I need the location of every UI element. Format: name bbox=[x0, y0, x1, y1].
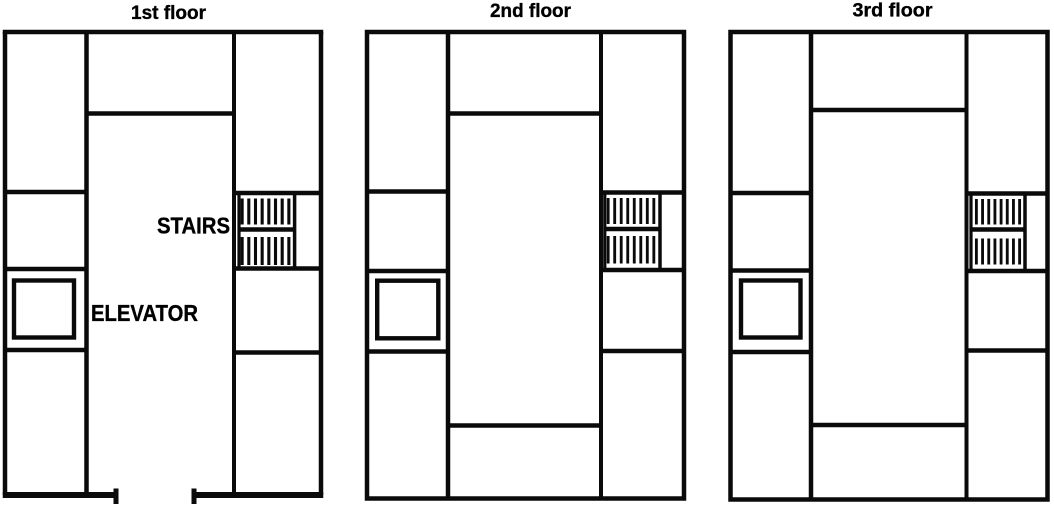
svg-text:3rd floor: 3rd floor bbox=[853, 0, 933, 22]
svg-text:1st floor: 1st floor bbox=[131, 2, 206, 24]
svg-text:2nd floor: 2nd floor bbox=[490, 0, 571, 22]
svg-text:STAIRS: STAIRS bbox=[157, 213, 230, 239]
svg-text:ELEVATOR: ELEVATOR bbox=[91, 300, 198, 326]
